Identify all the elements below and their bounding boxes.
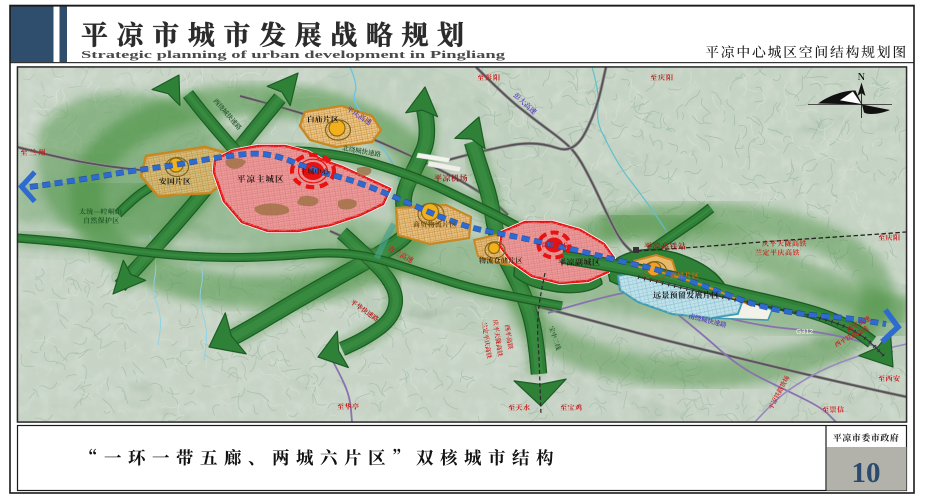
svg-text:10: 10: [852, 457, 881, 489]
svg-text:G312: G312: [796, 329, 813, 336]
svg-text:Strategic planning of urban de: Strategic planning of urban development …: [81, 50, 506, 61]
